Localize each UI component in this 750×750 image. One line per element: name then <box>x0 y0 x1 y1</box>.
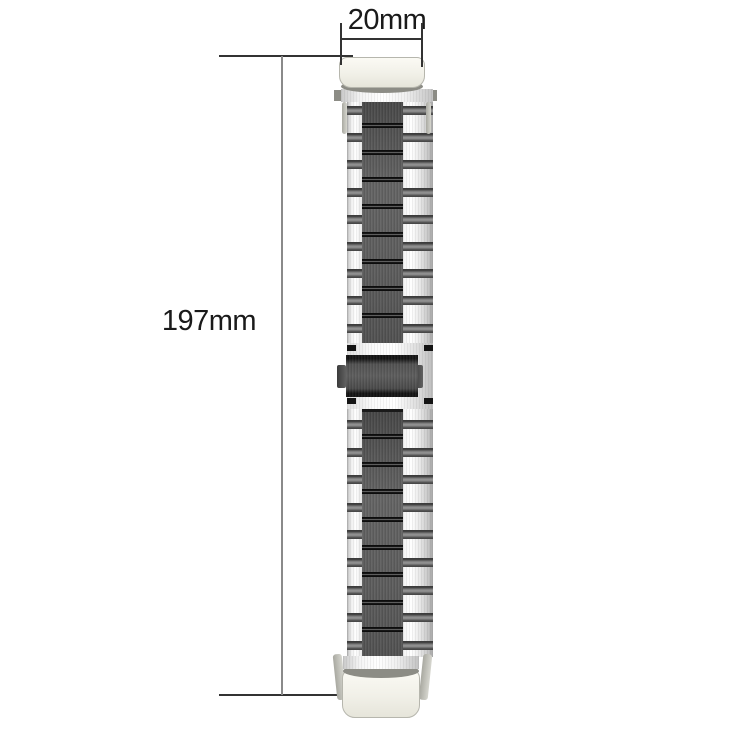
link-spacer-left <box>347 613 362 622</box>
link-spacer-left <box>347 296 362 305</box>
link-spacer-left <box>347 558 362 567</box>
link-spacer-right <box>403 475 433 484</box>
link-spacer-left <box>347 242 362 251</box>
clasp <box>337 343 438 409</box>
link-separator <box>362 313 403 318</box>
link-spacer-right <box>403 448 433 457</box>
bottom-lug-connector <box>343 656 419 669</box>
link-separator <box>362 627 403 632</box>
top-connector-tab-left <box>334 90 341 101</box>
link-spacer-left <box>347 530 362 539</box>
top-lug-cap <box>339 57 425 88</box>
links-bottom <box>347 409 433 657</box>
link-spacer-left <box>347 503 362 512</box>
clasp-tab-bottom-left <box>347 398 356 404</box>
link-spacer-right <box>403 269 433 278</box>
link-separator <box>362 517 403 522</box>
link-separator <box>362 600 403 605</box>
link-separator <box>362 572 403 577</box>
width-tick-left <box>340 23 342 65</box>
link-spacer-left <box>347 269 362 278</box>
link-spacer-left <box>347 420 362 429</box>
link-spacer-right <box>403 242 433 251</box>
link-spacer-left <box>347 106 362 115</box>
link-spacer-right <box>403 324 433 333</box>
link-spacer-right <box>403 641 433 650</box>
link-spacer-right <box>403 503 433 512</box>
width-dimension-label: 20mm <box>342 6 432 35</box>
top-band-arm-left <box>342 102 347 134</box>
link-spacer-right <box>403 188 433 197</box>
link-spacer-left <box>347 188 362 197</box>
link-separator <box>362 434 403 439</box>
link-spacer-left <box>347 215 362 224</box>
link-spacer-left <box>347 324 362 333</box>
length-dimension-label: 197mm <box>159 307 259 336</box>
product-dimension-diagram: 20mm 197mm <box>0 0 750 750</box>
dark-link-column <box>362 409 403 664</box>
link-spacer-left <box>347 160 362 169</box>
link-separator <box>362 462 403 467</box>
link-separator <box>362 489 403 494</box>
link-spacer-right <box>403 558 433 567</box>
link-spacer-left <box>347 133 362 142</box>
link-spacer-right <box>403 215 433 224</box>
length-extent-line <box>281 56 283 695</box>
link-separator <box>362 545 403 550</box>
link-spacer-left <box>347 586 362 595</box>
link-spacer-right <box>403 296 433 305</box>
width-tick-right <box>421 23 423 67</box>
link-separator <box>362 150 403 155</box>
length-tick-top <box>219 55 353 57</box>
width-dimension-line <box>341 38 423 40</box>
link-spacer-right <box>403 613 433 622</box>
link-separator <box>362 177 403 182</box>
link-spacer-right <box>403 420 433 429</box>
link-spacer-left <box>347 641 362 650</box>
link-spacer-left <box>347 475 362 484</box>
top-band-arm-right <box>426 102 431 134</box>
clasp-tab-top-left <box>347 345 356 351</box>
link-separator <box>362 232 403 237</box>
link-spacer-right <box>403 160 433 169</box>
link-separator <box>362 259 403 264</box>
link-separator <box>362 286 403 291</box>
clasp-wing-left <box>337 365 346 388</box>
link-spacer-right <box>403 586 433 595</box>
clasp-plate <box>346 355 418 397</box>
links-top <box>347 98 433 343</box>
link-spacer-right <box>403 133 433 142</box>
link-spacer-left <box>347 448 362 457</box>
clasp-tab-bottom-right <box>424 398 433 404</box>
link-separator <box>362 123 403 128</box>
clasp-tab-top-right <box>424 345 433 351</box>
dark-link-column <box>362 98 403 345</box>
link-spacer-right <box>403 530 433 539</box>
link-separator <box>362 204 403 209</box>
bottom-band-arm-right <box>419 654 433 701</box>
